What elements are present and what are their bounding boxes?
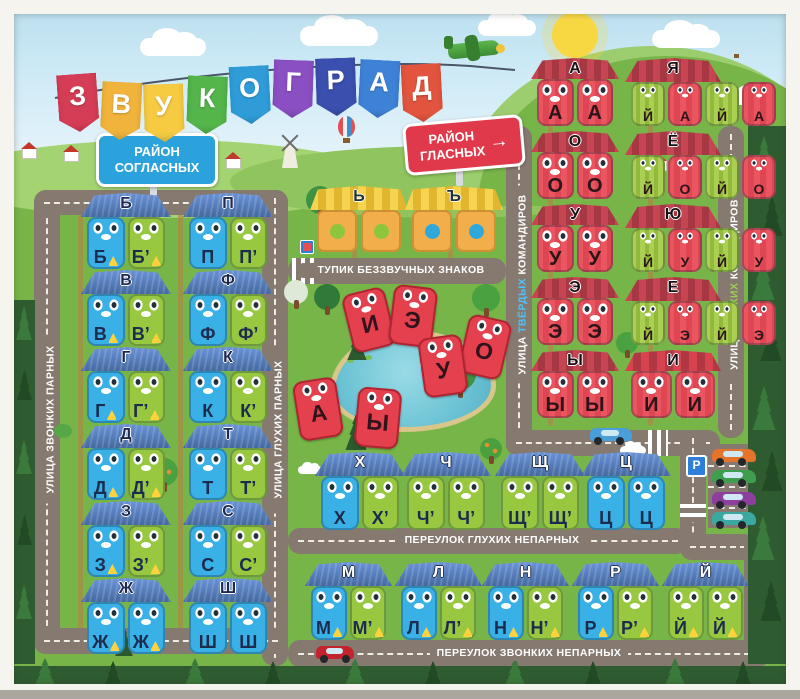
letter-unit: Д [87, 448, 125, 500]
letter-unit: А [742, 82, 776, 126]
letter-unit: У [668, 228, 702, 272]
face-icon [674, 231, 695, 244]
face-icon [129, 297, 163, 318]
face-icon [191, 220, 225, 241]
house-d: ДДД’ [86, 424, 166, 500]
face-icon [129, 451, 163, 472]
letter-unit: Л [401, 586, 437, 640]
house-u: УУУ [536, 204, 614, 272]
hot-air-balloon-icon [730, 38, 742, 58]
letter-unit: П’ [230, 217, 268, 269]
letter-unit: Й [705, 155, 739, 199]
roof: Щ [495, 452, 585, 476]
footpath [78, 214, 83, 640]
bell-icon [108, 564, 117, 574]
roof: Ё [625, 131, 721, 155]
letter-unit: С [189, 525, 227, 577]
roof: Ж [81, 578, 171, 602]
face-icon [543, 479, 577, 500]
face-icon [231, 374, 265, 395]
face-icon [503, 479, 537, 500]
bell-icon [107, 410, 116, 420]
bell-icon [152, 256, 161, 266]
letter-unit: Ы [577, 371, 614, 418]
face-icon [538, 374, 572, 395]
face-icon [711, 158, 732, 171]
face-icon [312, 589, 346, 610]
letter-unit: Й [705, 228, 739, 272]
letter-unit: Ж [128, 602, 166, 654]
roof: Ч [401, 452, 491, 476]
letter-unit: З’ [128, 525, 166, 577]
bell-icon [640, 627, 649, 637]
bell-icon [110, 641, 119, 651]
letter-unit: С’ [230, 525, 268, 577]
letter-unit: К [189, 371, 227, 423]
house-b: БББ’ [86, 193, 166, 269]
letter-unit: Э [742, 301, 776, 345]
house-ya: ЯЙАЙА [630, 58, 716, 126]
cloud-icon [478, 20, 536, 36]
map-scene: З В У К О Г Р А Д ✈ РАЙОНСОГЛАСНЫХ РАЙОН… [0, 0, 800, 690]
face-icon [129, 374, 163, 395]
face-icon [678, 374, 712, 395]
house-z: ЗЗЗ’ [86, 501, 166, 577]
letter-unit: И [631, 371, 672, 418]
house-t: ТТТ’ [188, 424, 268, 500]
face-icon [674, 304, 695, 317]
letter-unit: П [189, 217, 227, 269]
face-icon [363, 479, 397, 500]
face-icon [634, 374, 668, 395]
door [361, 210, 401, 252]
face-icon [578, 374, 612, 395]
roof: Э [531, 277, 619, 298]
letter-unit: Й [705, 301, 739, 345]
face-icon [748, 158, 769, 171]
face-icon [231, 528, 265, 549]
face-icon [637, 158, 658, 171]
roof: У [531, 204, 619, 225]
forest-strip-right [748, 126, 786, 664]
green-dot-icon [330, 224, 345, 239]
face-icon [191, 374, 225, 395]
letter-unit: Й [631, 228, 665, 272]
house-sh: ШШШ [188, 578, 268, 654]
parking-sign: P [686, 455, 707, 477]
house-n: ННН’ [487, 562, 564, 640]
letter-unit: Н [488, 586, 524, 640]
letter-unit: Ц [628, 476, 666, 530]
face-icon [191, 451, 225, 472]
letter-unit: Р’ [617, 586, 653, 640]
roof: Ы [531, 350, 619, 371]
letter-unit: Ы [537, 371, 574, 418]
house-m: МММ’ [310, 562, 387, 640]
face-icon [538, 155, 572, 176]
face-icon [538, 228, 572, 249]
car-orange [712, 449, 756, 462]
face-icon [449, 479, 483, 500]
letter-unit: Щ’ [501, 476, 539, 530]
street-label-voiceless-paired: УЛИЦА ГЛУХИХ ПАРНЫХ [272, 346, 287, 514]
crosswalk [680, 504, 706, 522]
face-icon [89, 528, 123, 549]
letter-unit: Х [321, 476, 359, 530]
house-shch: ЩЩ’Щ’ [500, 452, 580, 530]
letter-unit: Щ’ [542, 476, 580, 530]
face-icon [89, 297, 123, 318]
house-hard-sign: Ъ [410, 186, 498, 252]
roof: Ф [183, 270, 273, 294]
letter-unit: Р [578, 586, 614, 640]
face-icon [674, 85, 695, 98]
house-r: РРР’ [577, 562, 654, 640]
letter-unit: Й [631, 82, 665, 126]
letter-unit: Т [189, 448, 227, 500]
letter-unit: У [742, 228, 776, 272]
letter-unit: Э [577, 298, 614, 345]
face-icon [708, 589, 742, 610]
face-icon [578, 82, 612, 103]
face-icon [528, 589, 562, 610]
pond-letter-tile: Ы [353, 386, 402, 450]
roof: Й [662, 562, 749, 586]
house-yu: ЮЙУЙУ [630, 204, 716, 272]
bell-icon [463, 627, 472, 637]
roof: Я [625, 58, 721, 82]
street-label-soft-commanders: УЛИЦА МЯГКИХ КОМАНДИРОВ [728, 186, 743, 384]
house-l: ЛЛЛ’ [400, 562, 477, 640]
bell-icon [333, 627, 342, 637]
letter-unit: Ф’ [230, 294, 268, 346]
tree-icon [472, 284, 500, 317]
face-icon [748, 85, 769, 98]
house-e-hard: ЭЭЭ [536, 277, 614, 345]
roof: Р [572, 562, 659, 586]
blue-dot-icon [425, 224, 440, 239]
poster: З В У К О Г Р А Д ✈ РАЙОНСОГЛАСНЫХ РАЙОН… [0, 0, 800, 690]
letter-unit: Г [87, 371, 125, 423]
street-label-voiced-paired: УЛИЦА ЗВОНКИХ ПАРНЫХ [44, 336, 59, 504]
house-ye: ЕЙЭЙЭ [630, 277, 716, 345]
cloud-icon [300, 26, 378, 46]
bell-icon [689, 627, 698, 637]
bell-icon [152, 333, 161, 343]
pond-letter-tile: У [417, 333, 469, 399]
letter-unit: Д’ [128, 448, 166, 500]
roof: Б [81, 193, 171, 217]
bell-icon [151, 641, 160, 651]
roof: З [81, 501, 171, 525]
face-icon [637, 85, 658, 98]
house-kh: ХХХ’ [320, 452, 400, 530]
bell-icon [375, 627, 384, 637]
house-soft-sign: Ь [315, 186, 403, 252]
letter-unit: Й [707, 586, 743, 640]
letter-unit: А [577, 79, 614, 126]
street-label-silent-deadend: ТУПИК БЕЗЗВУЧНЫХ ЗНАКОВ [300, 263, 502, 278]
roof: Ь [310, 186, 408, 210]
face-icon [669, 589, 703, 610]
cloud-icon [652, 30, 720, 48]
roof: Ш [183, 578, 273, 602]
face-icon [538, 82, 572, 103]
letter-unit: Т’ [230, 448, 268, 500]
face-icon [129, 220, 163, 241]
bell-icon [151, 564, 160, 574]
letter-unit: В [87, 294, 125, 346]
face-icon [231, 297, 265, 318]
tree-icon [314, 284, 340, 315]
roof: О [531, 131, 619, 152]
car-red [316, 646, 354, 659]
letter-unit: Б’ [128, 217, 166, 269]
house-zh: ЖЖЖ [86, 578, 166, 654]
face-icon [578, 301, 612, 322]
letter-unit: А [668, 82, 702, 126]
village-house-icon [64, 151, 79, 162]
face-icon [748, 231, 769, 244]
house-f: ФФФ’ [188, 270, 268, 346]
bell-icon [551, 627, 560, 637]
letter-unit: И [675, 371, 716, 418]
door [317, 210, 357, 252]
roof: Д [81, 424, 171, 448]
house-g: ГГГ’ [86, 347, 166, 423]
letter-unit: Ж [87, 602, 125, 654]
house-j: ЙЙЙ [667, 562, 744, 640]
letter-unit: Й [631, 155, 665, 199]
face-icon [711, 304, 732, 317]
house-yo: ЁЙОЙО [630, 131, 716, 199]
face-icon [618, 589, 652, 610]
face-icon [89, 220, 123, 241]
village-house-icon [226, 158, 241, 169]
face-icon [129, 605, 163, 626]
letter-unit: О [537, 152, 574, 199]
face-icon [637, 304, 658, 317]
bell-icon [728, 627, 737, 637]
letter-unit: М’ [350, 586, 386, 640]
face-icon [191, 605, 225, 626]
house-k: ККК’ [188, 347, 268, 423]
face-icon [191, 297, 225, 318]
letter-unit: Й [631, 301, 665, 345]
face-icon [351, 589, 385, 610]
letter-unit: З [87, 525, 125, 577]
roof: Х [315, 452, 405, 476]
letter-unit: Х’ [362, 476, 400, 530]
bell-icon [109, 487, 118, 497]
bell-icon [109, 333, 118, 343]
letter-unit: Й [668, 586, 704, 640]
arrow-right-icon: → [489, 130, 510, 154]
blossom-tree-icon [284, 280, 308, 309]
roof: И [625, 350, 721, 371]
face-icon [129, 528, 163, 549]
vowel-district-sign: РАЙОНГЛАСНЫХ → [402, 114, 526, 176]
letter-unit: Э [668, 301, 702, 345]
hot-air-balloon-icon [338, 116, 355, 143]
village-house-icon [22, 148, 37, 159]
face-icon [89, 451, 123, 472]
street-label-voiced-unpaired: ПЕРЕУЛОК ЗВОНКИХ НЕПАРНЫХ [430, 646, 628, 661]
footpath [178, 214, 183, 640]
forest-strip-left [14, 300, 35, 664]
face-icon [711, 85, 732, 98]
pickup-blue [590, 428, 632, 441]
face-icon [538, 301, 572, 322]
roof: Г [81, 347, 171, 371]
road-sign-icon [300, 240, 314, 254]
face-icon [409, 479, 443, 500]
roof: Н [482, 562, 569, 586]
letter-unit: А [537, 79, 574, 126]
bush-icon [54, 424, 72, 438]
pond-letter-tile: А [292, 376, 345, 442]
face-icon [629, 479, 663, 500]
roof: Л [395, 562, 482, 586]
face-icon [191, 528, 225, 549]
face-icon [441, 589, 475, 610]
face-icon [578, 155, 612, 176]
letter-unit: Ш [230, 602, 268, 654]
house-s: ССС’ [188, 501, 268, 577]
street-label-hard-commanders: УЛИЦА ТВЁРДЫХ КОМАНДИРОВ [516, 186, 531, 384]
letter-unit: О [742, 155, 776, 199]
house-i: ИИИ [630, 350, 716, 418]
letter-unit: В’ [128, 294, 166, 346]
face-icon [489, 589, 523, 610]
letter-unit: О [668, 155, 702, 199]
house-ch: ЧЧ’Ч’ [406, 452, 486, 530]
airplane-icon [448, 42, 500, 57]
bell-icon [109, 256, 118, 266]
letter-unit: У [537, 225, 574, 272]
car-green [712, 470, 756, 483]
consonant-district-sign: РАЙОНСОГЛАСНЫХ [96, 133, 218, 187]
car-purple [712, 492, 756, 505]
bell-icon [422, 627, 431, 637]
house-y: ЫЫЫ [536, 350, 614, 418]
house-a: ААА [536, 58, 614, 126]
letter-unit: Й [705, 82, 739, 126]
face-icon [89, 605, 123, 626]
letter-unit: Ш [189, 602, 227, 654]
face-icon [589, 479, 623, 500]
letter-unit: Н’ [527, 586, 563, 640]
letter-unit: Ч’ [407, 476, 445, 530]
door [456, 210, 496, 252]
roof: В [81, 270, 171, 294]
letter-unit: Г’ [128, 371, 166, 423]
house-p: ППП’ [188, 193, 268, 269]
letter-unit: Э [537, 298, 574, 345]
letter-unit: Ц [587, 476, 625, 530]
roof: П [183, 193, 273, 217]
green-dot-icon [374, 224, 389, 239]
roof: Т [183, 424, 273, 448]
bell-icon [150, 410, 159, 420]
blue-dot-icon [469, 224, 484, 239]
table-shadow [0, 690, 800, 699]
letter-unit: Л’ [440, 586, 476, 640]
roof: А [531, 58, 619, 79]
face-icon [579, 589, 613, 610]
letter-unit: У [577, 225, 614, 272]
roof: Ъ [405, 186, 503, 210]
letter-unit: Ф [189, 294, 227, 346]
roof: М [305, 562, 392, 586]
face-icon [89, 374, 123, 395]
letter-unit: О [577, 152, 614, 199]
face-icon [578, 228, 612, 249]
forest-strip-bottom [14, 666, 786, 686]
letter-unit: К’ [230, 371, 268, 423]
face-icon [231, 451, 265, 472]
house-v: ВВВ’ [86, 270, 166, 346]
letter-unit: Б [87, 217, 125, 269]
face-icon [637, 231, 658, 244]
house-o: ООО [536, 131, 614, 199]
letter-unit: М [311, 586, 347, 640]
face-icon [711, 231, 732, 244]
face-icon [323, 479, 357, 500]
roof: Е [625, 277, 721, 301]
face-icon [748, 304, 769, 317]
house-ts: ЦЦЦ [586, 452, 666, 530]
bell-icon [152, 487, 161, 497]
face-icon [402, 589, 436, 610]
face-icon [231, 605, 265, 626]
car-teal [712, 512, 756, 525]
door [412, 210, 452, 252]
face-icon [674, 158, 695, 171]
sun-icon [552, 12, 598, 58]
bell-icon [599, 627, 608, 637]
face-icon [231, 220, 265, 241]
roof: Ю [625, 204, 721, 228]
letter-unit: Ч’ [448, 476, 486, 530]
poster-photo: З В У К О Г Р А Д ✈ РАЙОНСОГЛАСНЫХ РАЙОН… [0, 0, 800, 699]
street-label-voiceless-unpaired: ПЕРЕУЛОК ГЛУХИХ НЕПАРНЫХ [395, 533, 589, 548]
roof: К [183, 347, 273, 371]
roof: С [183, 501, 273, 525]
bell-icon [509, 627, 518, 637]
roof: Ц [581, 452, 671, 476]
